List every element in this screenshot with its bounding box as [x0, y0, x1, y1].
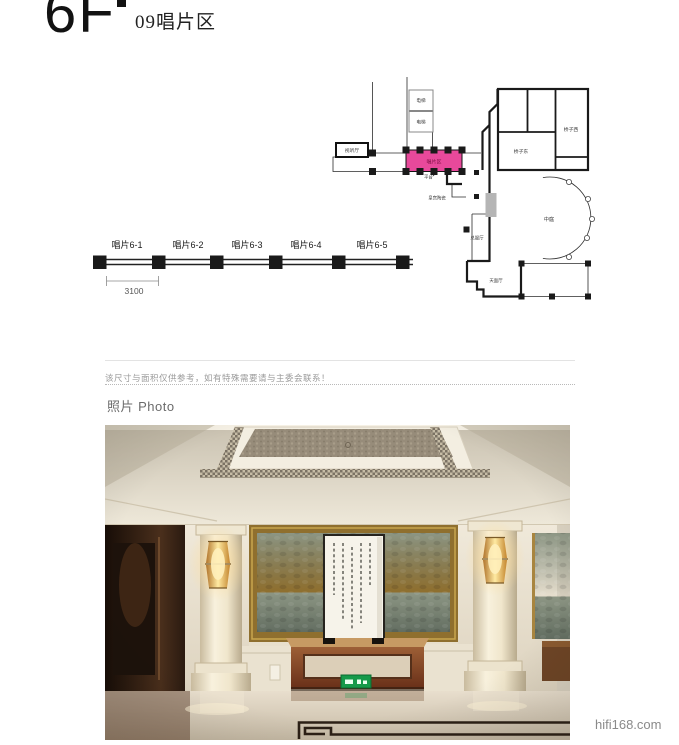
shop-label: 唱片6-5 [356, 239, 387, 250]
photo-heading-en: Photo [138, 399, 174, 414]
shop-label: 唱片6-1 [111, 239, 142, 250]
label-ceramics: 皇宫陶瓷 [428, 195, 446, 202]
page-title-floor: 6F [44, 0, 116, 46]
photo-vignette [105, 425, 570, 740]
dimension [107, 276, 159, 286]
atrium-columns [566, 179, 594, 259]
photo [105, 425, 570, 740]
shop-label: 唱片6-4 [290, 239, 321, 250]
label-bridge-west: 桥子西 [564, 126, 579, 133]
label-bridge-east: 桥子东 [514, 148, 529, 155]
dotted-separator [105, 384, 575, 385]
floor-plan: 电梯 电梯 视听厅 唱片区 平台 皇宫陶瓷 桥子西 桥子东 中庭 总服厅 天面厅 [88, 58, 646, 312]
photo-section-heading: 照片 Photo [107, 396, 175, 415]
label-elevator-top: 电梯 [416, 97, 426, 104]
watermark: hifi168.com [595, 717, 661, 732]
label-atrium: 中庭 [544, 215, 554, 223]
note-row: 该尺寸与面积仅供参考，如有特殊需要请与主委会联系！ [105, 360, 575, 386]
note-text: 该尺寸与面积仅供参考，如有特殊需要请与主委会联系！ [105, 373, 330, 383]
cropped-text-mark [117, 0, 126, 7]
label-elevator-bottom: 电梯 [416, 119, 426, 126]
label-platform: 平台 [424, 174, 433, 181]
plan-thick-walls [447, 89, 588, 297]
shop-label: 唱片6-2 [172, 239, 203, 250]
shop-label: 唱片6-3 [231, 239, 262, 250]
shop-row: 唱片6-1 唱片6-2 唱片6-3 唱片6-4 唱片6-5 3100 [93, 239, 413, 296]
av-hall: 视听厅 [336, 143, 368, 157]
photo-heading-cn: 照片 [107, 399, 134, 414]
label-sky-hall: 天面厅 [489, 278, 503, 284]
photo-scene [105, 425, 570, 740]
page-title-area: 09唱片区 [135, 7, 216, 34]
door-marker [486, 193, 497, 217]
label-service-hall: 总服厅 [470, 235, 484, 242]
label-record-area: 唱片区 [426, 159, 441, 166]
label-av-hall: 视听厅 [345, 147, 360, 154]
elevator-shafts: 电梯 电梯 [409, 90, 433, 132]
dimension-value: 3100 [125, 286, 144, 296]
